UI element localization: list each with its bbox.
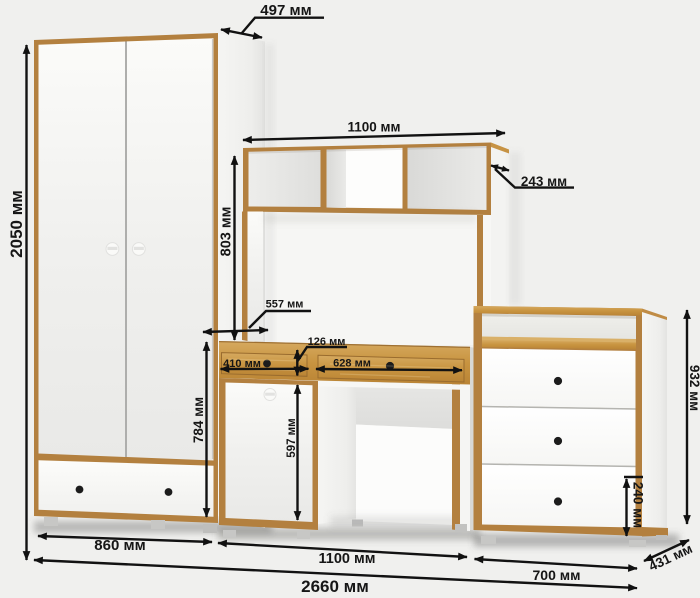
svg-text:243 мм: 243 мм [521, 174, 567, 189]
svg-text:803 мм: 803 мм [219, 207, 235, 257]
svg-text:126 мм: 126 мм [308, 336, 346, 348]
svg-text:784 мм: 784 мм [191, 397, 206, 443]
svg-text:597 мм: 597 мм [286, 418, 298, 457]
svg-text:410 мм: 410 мм [223, 358, 261, 370]
svg-text:860 мм: 860 мм [94, 537, 145, 554]
svg-text:1100 мм: 1100 мм [319, 551, 376, 567]
svg-text:1100 мм: 1100 мм [347, 120, 400, 135]
svg-text:2050 мм: 2050 мм [7, 190, 26, 258]
svg-text:497 мм: 497 мм [260, 2, 311, 19]
svg-text:932 мм: 932 мм [687, 365, 700, 411]
svg-text:2660 мм: 2660 мм [301, 577, 369, 596]
svg-text:557 мм: 557 мм [266, 299, 304, 311]
svg-text:240 мм: 240 мм [631, 482, 646, 528]
svg-text:628 мм: 628 мм [333, 358, 371, 370]
svg-text:700 мм: 700 мм [533, 567, 581, 583]
